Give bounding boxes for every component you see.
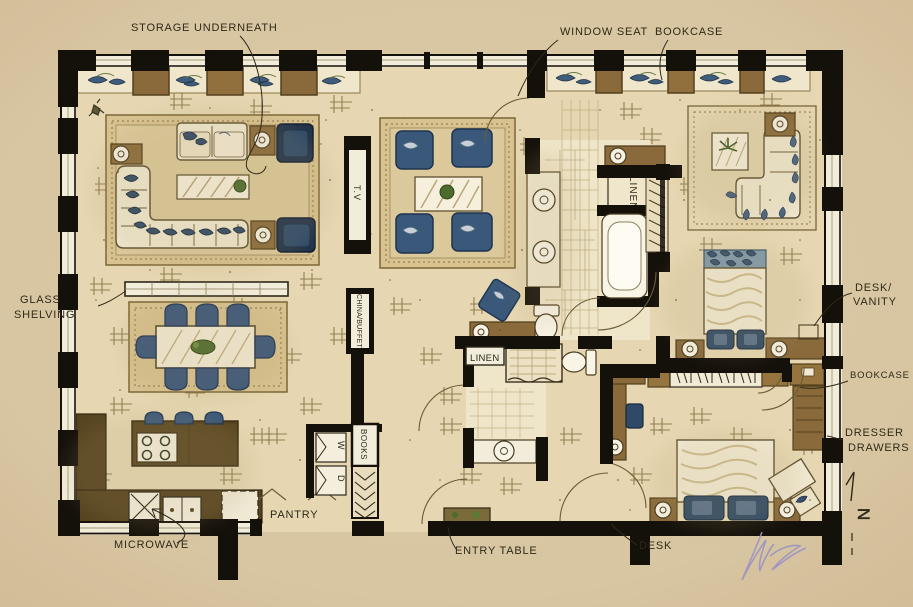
svg-text:T.V: T.V	[352, 185, 362, 201]
svg-text:SHELVING: SHELVING	[14, 309, 75, 321]
svg-text:GLASS: GLASS	[20, 294, 61, 306]
svg-text:STORAGE UNDERNEATH: STORAGE UNDERNEATH	[131, 22, 278, 34]
svg-text:DRESSER: DRESSER	[845, 427, 904, 439]
svg-text:PANTRY: PANTRY	[270, 509, 318, 521]
svg-text:BOOKS: BOOKS	[359, 429, 368, 460]
svg-text:DESK/: DESK/	[855, 282, 892, 294]
svg-text:N: N	[854, 508, 873, 520]
svg-text:VANITY: VANITY	[853, 296, 897, 308]
svg-text:W: W	[336, 441, 346, 450]
svg-text:ENTRY TABLE: ENTRY TABLE	[455, 545, 538, 557]
svg-text:DESK: DESK	[639, 540, 672, 552]
svg-text:WINDOW SEAT: WINDOW SEAT	[560, 26, 648, 38]
svg-text:LINEN: LINEN	[470, 353, 499, 364]
svg-text:D: D	[336, 475, 346, 482]
svg-text:BOOKCASE: BOOKCASE	[655, 26, 723, 38]
svg-text:DRAWERS: DRAWERS	[848, 442, 909, 454]
svg-text:CHINA/BUFFET: CHINA/BUFFET	[355, 294, 364, 348]
svg-text:MICROWAVE: MICROWAVE	[114, 539, 189, 551]
svg-text:BOOKCASE: BOOKCASE	[850, 370, 910, 381]
